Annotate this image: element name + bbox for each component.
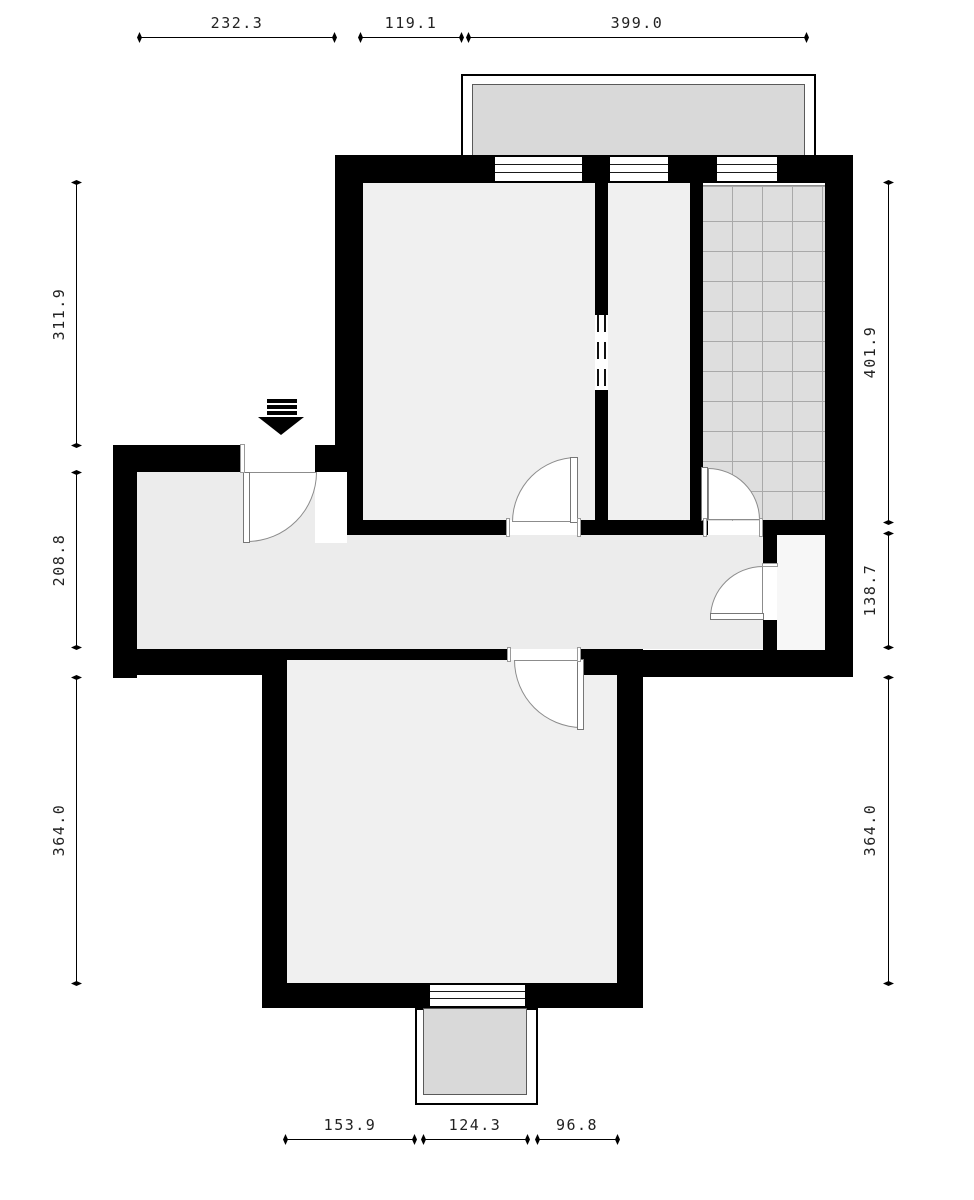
dim-line-bottom-1 xyxy=(285,1139,415,1140)
dim-label-top-3: 399.0 xyxy=(611,14,664,32)
dim-label-left-3: 364.0 xyxy=(50,804,68,857)
wall-hall-left-exterior xyxy=(113,445,137,678)
entrance-door-jamb xyxy=(240,444,245,473)
dim-line-top-1 xyxy=(139,37,335,38)
dim-line-right-2 xyxy=(888,533,889,648)
dim-label-top-1: 232.3 xyxy=(211,14,264,32)
window-room1 xyxy=(495,155,582,183)
window-tiled-room xyxy=(717,155,777,183)
wall-divider-room1-room2-upper xyxy=(595,183,608,315)
dim-label-right-2: 138.7 xyxy=(861,564,879,617)
dim-label-left-1: 311.9 xyxy=(50,288,68,341)
dim-label-top-2: 119.1 xyxy=(385,14,438,32)
dim-line-left-1 xyxy=(76,182,77,446)
wall-hall-top-right-stub xyxy=(315,445,337,472)
bottom-room-door-jamb-right xyxy=(577,647,581,662)
entrance-door-clearance xyxy=(315,472,347,543)
bottom-room-door-leaf xyxy=(577,659,584,730)
dim-label-right-3: 364.0 xyxy=(861,804,879,857)
divider-dashed-line-right xyxy=(604,315,606,390)
wall-bottomroom-top xyxy=(287,649,511,660)
wall-bottomroom-left xyxy=(262,649,287,1008)
balcony-top-floor xyxy=(472,84,805,157)
niche-door-jamb-top xyxy=(762,563,778,567)
dim-line-left-3 xyxy=(76,677,77,984)
tiled-room-door-leaf xyxy=(701,467,708,521)
dim-line-right-3 xyxy=(888,677,889,984)
dim-line-bottom-3 xyxy=(537,1139,618,1140)
bottom-room-door-jamb-left xyxy=(507,647,511,662)
wall-bottomroom-bottom-a xyxy=(262,983,430,1008)
room1-door-jamb-right xyxy=(577,518,581,537)
corridor-floor xyxy=(137,535,763,649)
tiled-room-door-jamb-right xyxy=(759,518,763,537)
wall-right-exterior xyxy=(825,155,853,677)
wall-mid-horizontal-c xyxy=(760,520,853,535)
window-room2 xyxy=(610,155,668,183)
divider-dashed-line-left xyxy=(597,315,599,390)
dim-label-left-2: 208.8 xyxy=(50,534,68,587)
wall-left-room1 xyxy=(335,155,363,472)
storage-niche-floor xyxy=(777,535,825,650)
wall-divider-room1-room2-lower xyxy=(595,390,608,520)
dim-label-right-1: 401.9 xyxy=(861,326,879,379)
entrance-door-leaf xyxy=(243,472,250,543)
room-top-middle-floor xyxy=(608,183,690,520)
wall-mid-horizontal-a xyxy=(335,520,510,535)
wall-niche-left-lower xyxy=(763,620,777,650)
wall-mid-horizontal-b xyxy=(578,520,708,535)
wall-bottomroom-right xyxy=(617,649,643,1008)
floor-plan-canvas: 232.3 119.1 399.0 311.9 208.8 364.0 401.… xyxy=(0,0,974,1200)
balcony-bottom-floor xyxy=(423,1008,527,1095)
dim-line-top-3 xyxy=(468,37,807,38)
dim-label-bottom-2: 124.3 xyxy=(449,1116,502,1134)
wall-corridor-bottom-right xyxy=(643,650,853,677)
dim-line-bottom-2 xyxy=(423,1139,528,1140)
dim-label-bottom-3: 96.8 xyxy=(556,1116,598,1134)
room1-door-leaf xyxy=(570,457,578,523)
wall-corridor-bottom-left xyxy=(113,649,262,675)
wall-bottomroom-bottom-b xyxy=(525,983,643,1008)
window-bottom-room xyxy=(430,983,525,1008)
dim-label-bottom-1: 153.9 xyxy=(324,1116,377,1134)
dim-line-top-2 xyxy=(360,37,462,38)
dim-line-right-1 xyxy=(888,182,889,523)
tiled-room-door-jamb-left xyxy=(703,518,707,537)
room1-door-jamb-left xyxy=(506,518,510,537)
niche-door-leaf xyxy=(710,613,764,620)
dim-line-left-2 xyxy=(76,472,77,648)
